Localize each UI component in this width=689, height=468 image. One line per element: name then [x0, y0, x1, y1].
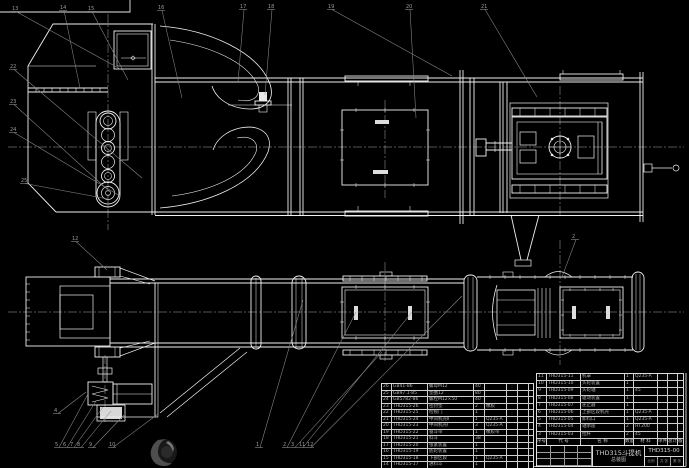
bom-cell: 1: [625, 396, 634, 403]
bom-cell: [678, 381, 683, 388]
bom-cell: 6: [537, 410, 547, 417]
bom-cell: 拉杆: [581, 432, 625, 439]
bom-cell: [678, 396, 683, 403]
bom-cell: 轴承座: [581, 424, 625, 431]
bom-cell: [634, 403, 658, 410]
bom-row: 3THD315-03拉杆245: [537, 432, 683, 439]
bom-cell: 1: [625, 388, 634, 395]
bom-row: 14THD315-17进料斗1: [382, 462, 533, 468]
item-number: 1: [256, 442, 259, 448]
bom-cell: 1: [625, 381, 634, 388]
item-number: 12: [72, 236, 78, 242]
info-sheets: 共 张: [658, 457, 671, 466]
leader-line: [113, 414, 158, 448]
bom-cell: 2: [625, 424, 634, 431]
leader-line: [562, 240, 576, 278]
buckets: [160, 26, 292, 208]
bom-cell: 45: [634, 388, 658, 395]
item-number: 3: [291, 442, 294, 448]
item-number: 24: [10, 127, 16, 133]
bom-cell: [668, 388, 678, 395]
bom-cell: [678, 388, 683, 395]
bom-cell: [529, 462, 533, 468]
bom-cell: [678, 410, 683, 417]
bom-row: 5THD315-05卸料口1Q235-A: [537, 417, 683, 424]
bom-cell: 头轮装置: [581, 381, 625, 388]
bom-cell: 1: [625, 374, 634, 381]
bom-cell: 2: [625, 432, 634, 439]
bom-cell: [668, 417, 678, 424]
item-number: 25: [21, 178, 27, 184]
leader-line: [76, 242, 107, 271]
leader-line: [287, 312, 356, 448]
leader-line: [16, 12, 122, 71]
bom-cell: [658, 388, 668, 395]
bom-row: 10THD315-10头轮装置1: [537, 381, 683, 388]
signature-cell: [537, 459, 551, 466]
bom-cell: 1: [625, 403, 634, 410]
bom-cell: 机罩: [581, 374, 625, 381]
bom-cell: HT200: [634, 424, 658, 431]
title-block-name: THD315斗提机 总装图: [593, 446, 645, 466]
item-number: 2: [572, 234, 575, 240]
bom-cell: Q235-A: [634, 417, 658, 424]
bom-cell: Q235-A: [634, 374, 658, 381]
bom-cell: Q235-A: [634, 410, 658, 417]
leader-line: [295, 352, 382, 448]
bom-row: 8THD315-08驱动装置1: [537, 396, 683, 403]
leader-line: [162, 11, 182, 99]
watermark-logo: [151, 439, 177, 466]
bom-cell: [658, 410, 668, 417]
item-number: 11: [299, 442, 305, 448]
sheet-name: 总装图: [611, 457, 626, 463]
item-number: 8: [77, 442, 80, 448]
leader-line: [64, 11, 80, 89]
item-number: 20: [406, 4, 412, 10]
bom-row: 9THD315-09头轮轴145: [537, 388, 683, 395]
item-number: 6: [63, 442, 66, 448]
bom-cell: THD315-10: [547, 381, 581, 388]
item-number: 16: [158, 5, 164, 11]
leader-line: [14, 133, 120, 197]
head-plan: [464, 272, 644, 356]
item-number: 17: [240, 4, 246, 10]
bom-cell: [634, 381, 658, 388]
bom-cell: 8: [537, 396, 547, 403]
bom-cell: 4: [537, 424, 547, 431]
item-number: 23: [10, 99, 16, 105]
leader-line: [332, 10, 452, 77]
bom-cell: [668, 396, 678, 403]
leader-line: [410, 10, 416, 119]
centerlines: [8, 14, 684, 422]
bom-row: 11THD315-11机罩1Q235-A: [537, 374, 683, 381]
bom-cell: [678, 417, 683, 424]
bom-cell: 11: [537, 374, 547, 381]
product-name: THD315斗提机: [596, 449, 642, 457]
bom-cell: [668, 410, 678, 417]
bom-cell: [658, 374, 668, 381]
bom-cell: THD315-04: [547, 424, 581, 431]
bom-cell: [658, 396, 668, 403]
item-number: 9: [89, 442, 92, 448]
top-view: [28, 24, 679, 266]
bom-cell: THD315-05: [547, 417, 581, 424]
bom-cell: 逆止器: [581, 403, 625, 410]
leader-line: [260, 300, 303, 448]
sprocket-chain: [88, 111, 128, 207]
bom-table-right: 11THD315-11机罩1Q235-A10THD315-10头轮装置19THD…: [536, 373, 684, 445]
info-scale: 比例: [645, 457, 658, 466]
bom-cell: [507, 462, 518, 468]
leader-line: [58, 392, 86, 414]
bom-cell: 卸料口: [581, 417, 625, 424]
bom-cell: 头轮轴: [581, 388, 625, 395]
bom-cell: [658, 417, 668, 424]
leader-line: [485, 10, 537, 98]
bom-row: 6THD315-06上部区段机壳1Q235-A: [537, 410, 683, 417]
drawing-number: THD315-00: [645, 446, 683, 457]
bom-cell: 3: [537, 432, 547, 439]
bom-table-left: 26GB41-86螺母M124025GB97.1-85垫圈128024GB578…: [381, 383, 534, 468]
leader-line: [238, 10, 244, 83]
bom-cell: 进料斗: [428, 462, 474, 468]
signature-cell: [578, 459, 592, 466]
bom-cell: [668, 381, 678, 388]
bom-cell: 上部区段机壳: [581, 410, 625, 417]
bom-cell: THD315-09: [547, 388, 581, 395]
bom-cell: 1: [625, 410, 634, 417]
signature-grid: [537, 446, 593, 466]
takeup-assembly: [88, 283, 247, 421]
item-number: 12: [307, 442, 313, 448]
item-number: 2: [283, 442, 286, 448]
bom-cell: [668, 432, 678, 439]
bom-cell: THD315-07: [547, 403, 581, 410]
item-number: 22: [10, 64, 16, 70]
signature-cell: [565, 459, 579, 466]
bom-cell: [658, 381, 668, 388]
bom-cell: THD315-06: [547, 410, 581, 417]
bom-cell: [678, 403, 683, 410]
bom-cell: 1: [474, 462, 485, 468]
item-number: 7: [70, 442, 73, 448]
bom-cell: [668, 424, 678, 431]
bom-cell: 7: [537, 403, 547, 410]
bom-cell: 驱动装置: [581, 396, 625, 403]
info-sheet-no: 第 张: [671, 457, 683, 466]
title-block: THD315斗提机 总装图 THD315-00 比例 共 张 第 张: [536, 445, 684, 467]
bom-cell: [634, 396, 658, 403]
bom-cell: THD315-11: [547, 374, 581, 381]
bom-row: 4THD315-04轴承座2HT200: [537, 424, 683, 431]
bom-cell: 5: [537, 417, 547, 424]
item-number: 15: [88, 6, 94, 12]
leader-line: [14, 70, 142, 179]
signature-cell: [551, 459, 565, 466]
item-number: 19: [328, 4, 334, 10]
item-number: 10: [109, 442, 115, 448]
item-number: 13: [12, 6, 18, 12]
drive-head-top: [476, 70, 679, 266]
bom-cell: 1: [625, 417, 634, 424]
bom-cell: [678, 374, 683, 381]
bom-cell: [668, 374, 678, 381]
item-number: 21: [481, 4, 487, 10]
bom-cell: 10: [537, 381, 547, 388]
bom-row: 7THD315-07逆止器1: [537, 403, 683, 410]
bom-cell: [485, 462, 507, 468]
item-number: 18: [268, 4, 274, 10]
item-number: 5: [55, 442, 58, 448]
bom-cell: [668, 403, 678, 410]
cad-viewport: 1314151617181920212223242512256789104123…: [0, 0, 689, 468]
bom-cell: [658, 403, 668, 410]
item-number: 4: [54, 408, 57, 414]
callouts: 1314151617181920212223242512256789104123…: [9, 4, 579, 448]
title-block-info: 比例 共 张 第 张: [645, 457, 683, 466]
bom-cell: THD315-03: [547, 432, 581, 439]
bom-cell: 14: [382, 462, 392, 468]
title-block-right: THD315-00 比例 共 张 第 张: [645, 446, 683, 466]
bom-cell: [658, 432, 668, 439]
item-number: 14: [60, 5, 66, 11]
bom-cell: 45: [634, 432, 658, 439]
bom-cell: [678, 432, 683, 439]
bom-cell: [658, 424, 668, 431]
bom-cell: THD315-08: [547, 396, 581, 403]
bom-cell: 9: [537, 388, 547, 395]
bom-cell: THD315-17: [392, 462, 428, 468]
bom-cell: [518, 462, 529, 468]
bom-cell: [678, 424, 683, 431]
leader-line: [92, 12, 128, 81]
